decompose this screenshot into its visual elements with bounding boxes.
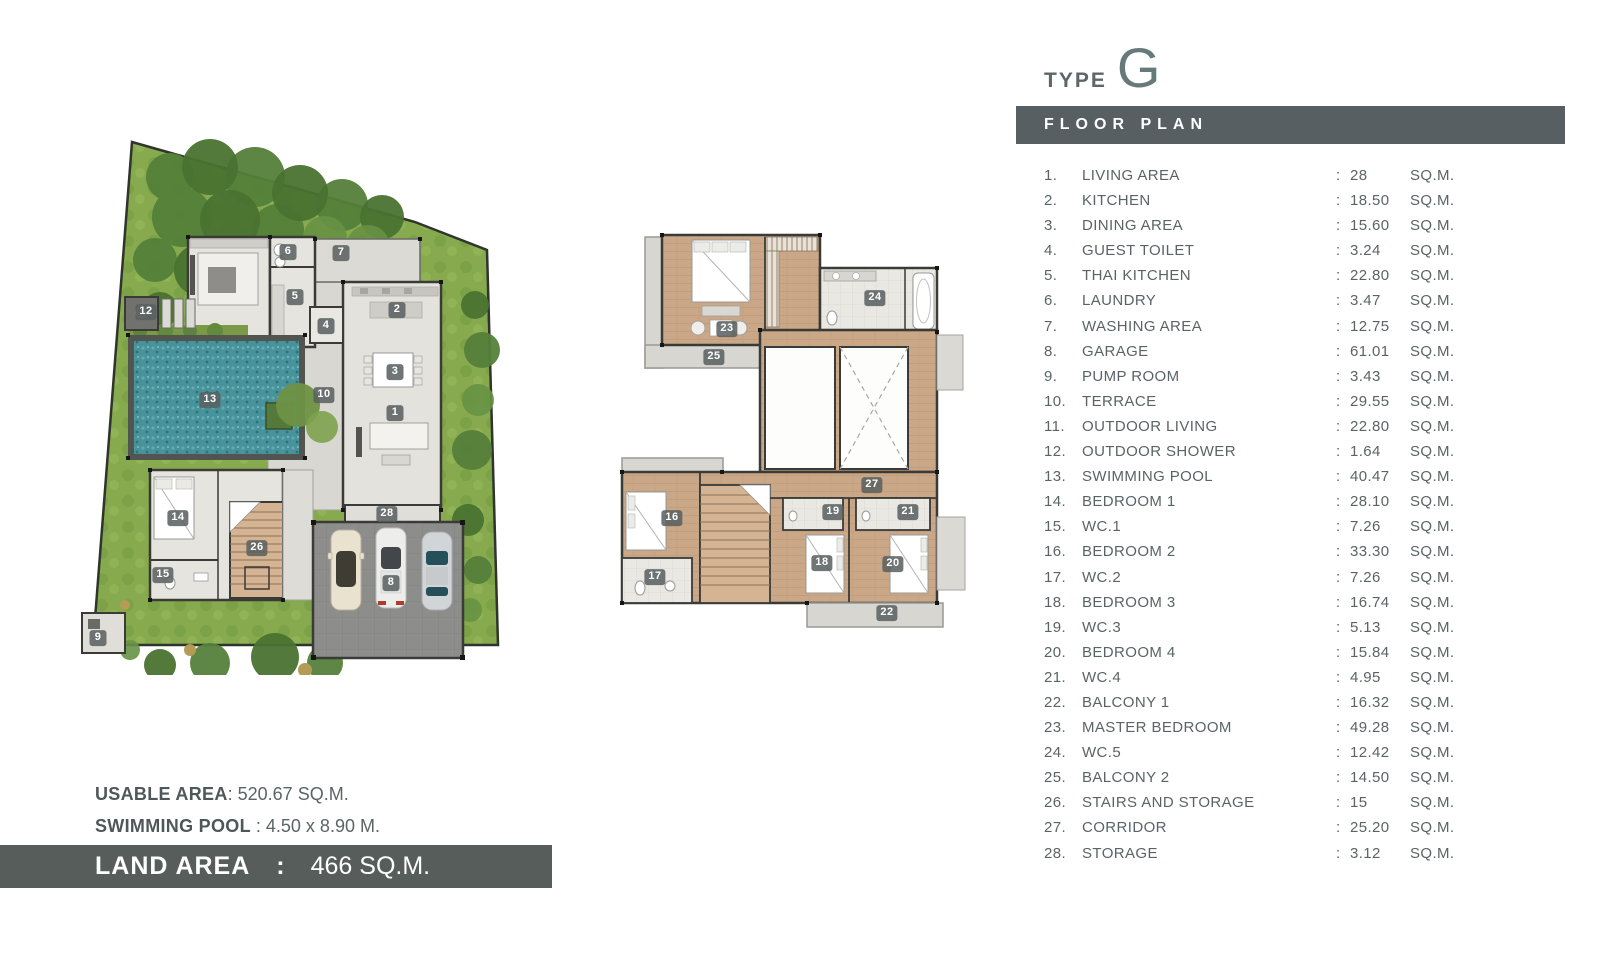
room-value: 12.75: [1350, 318, 1390, 335]
room-no: 2.: [1044, 192, 1057, 209]
room-number-badge: 14: [167, 510, 188, 526]
room-name: OUTDOOR SHOWER: [1082, 443, 1236, 460]
room-name: BEDROOM 2: [1082, 543, 1176, 560]
room-list-row: 3.DINING AREA:15.60SQ.M.: [1044, 214, 1484, 239]
room-no: 8.: [1044, 343, 1057, 360]
room-no: 25.: [1044, 769, 1066, 786]
room-value: 18.50: [1350, 192, 1390, 209]
second-floor-room-badges: 2324252716171921182022: [600, 220, 970, 640]
usable-area-line: USABLE AREA: 520.67 SQ.M.: [95, 784, 349, 805]
room-number-badge: 5: [287, 289, 304, 305]
room-value: 12.42: [1350, 744, 1390, 761]
room-list-row: 19.WC.3:5.13SQ.M.: [1044, 616, 1484, 641]
room-no: 13.: [1044, 468, 1066, 485]
room-number-badge: 10: [313, 387, 334, 403]
room-value: 4.95: [1350, 669, 1381, 686]
room-list-row: 8.GARAGE:61.01SQ.M.: [1044, 340, 1484, 365]
room-colon: :: [1336, 318, 1341, 335]
room-no: 12.: [1044, 443, 1066, 460]
room-list-row: 15.WC.1:7.26SQ.M.: [1044, 515, 1484, 540]
room-unit: SQ.M.: [1410, 845, 1455, 862]
usable-area-value: : 520.67 SQ.M.: [228, 784, 349, 804]
room-number-badge: 7: [333, 245, 350, 261]
room-no: 14.: [1044, 493, 1066, 510]
room-colon: :: [1336, 543, 1341, 560]
room-value: 5.13: [1350, 619, 1381, 636]
room-list-row: 5.THAI KITCHEN:22.80SQ.M.: [1044, 264, 1484, 289]
room-colon: :: [1336, 619, 1341, 636]
room-list-row: 6.LAUNDRY:3.47SQ.M.: [1044, 289, 1484, 314]
room-value: 28.10: [1350, 493, 1390, 510]
room-value: 22.80: [1350, 418, 1390, 435]
room-number-badge: 27: [861, 477, 882, 493]
room-list-row: 22.BALCONY 1:16.32SQ.M.: [1044, 691, 1484, 716]
floorplan-brochure-page: { "header": { "type_label": "TYPE", "typ…: [0, 0, 1600, 962]
room-list-row: 20.BEDROOM 4:15.84SQ.M.: [1044, 641, 1484, 666]
room-list-row: 1.LIVING AREA:28SQ.M.: [1044, 164, 1484, 189]
room-value: 22.80: [1350, 267, 1390, 284]
room-unit: SQ.M.: [1410, 669, 1455, 686]
room-number-badge: 4: [318, 318, 335, 334]
room-name: TERRACE: [1082, 393, 1156, 410]
room-unit: SQ.M.: [1410, 167, 1455, 184]
room-value: 15: [1350, 794, 1368, 811]
room-no: 17.: [1044, 569, 1066, 586]
room-list-row: 17.WC.2:7.26SQ.M.: [1044, 566, 1484, 591]
room-name: KITCHEN: [1082, 192, 1151, 209]
room-colon: :: [1336, 644, 1341, 661]
room-value: 28: [1350, 167, 1368, 184]
room-unit: SQ.M.: [1410, 393, 1455, 410]
room-number-badge: 25: [703, 349, 724, 365]
room-list-row: 25.BALCONY 2:14.50SQ.M.: [1044, 766, 1484, 791]
room-no: 11.: [1044, 418, 1065, 435]
room-unit: SQ.M.: [1410, 242, 1455, 259]
room-value: 25.20: [1350, 819, 1390, 836]
room-number-badge: 17: [644, 569, 665, 585]
room-name: BALCONY 1: [1082, 694, 1170, 711]
room-no: 22.: [1044, 694, 1066, 711]
room-no: 27.: [1044, 819, 1066, 836]
room-number-badge: 28: [376, 506, 397, 522]
room-list-row: 9.PUMP ROOM:3.43SQ.M.: [1044, 365, 1484, 390]
room-value: 49.28: [1350, 719, 1390, 736]
room-list-row: 14.BEDROOM 1:28.10SQ.M.: [1044, 490, 1484, 515]
room-no: 9.: [1044, 368, 1057, 385]
room-list-row: 18.BEDROOM 3:16.74SQ.M.: [1044, 591, 1484, 616]
room-unit: SQ.M.: [1410, 368, 1455, 385]
room-name: WASHING AREA: [1082, 318, 1202, 335]
room-list-row: 26.STAIRS AND STORAGE:15SQ.M.: [1044, 791, 1484, 816]
room-list-row: 2.KITCHEN:18.50SQ.M.: [1044, 189, 1484, 214]
room-list-row: 11.OUTDOOR LIVING:22.80SQ.M.: [1044, 415, 1484, 440]
room-unit: SQ.M.: [1410, 644, 1455, 661]
ground-floor-plan: 67542311213101415262889: [70, 105, 530, 675]
room-value: 33.30: [1350, 543, 1390, 560]
type-label: TYPE: [1044, 69, 1107, 93]
room-number-badge: 1: [387, 405, 404, 421]
room-name: SWIMMING POOL: [1082, 468, 1213, 485]
room-list-row: 23.MASTER BEDROOM:49.28SQ.M.: [1044, 716, 1484, 741]
room-colon: :: [1336, 694, 1341, 711]
room-value: 3.12: [1350, 845, 1381, 862]
room-no: 7.: [1044, 318, 1057, 335]
room-name: WC.5: [1082, 744, 1121, 761]
room-colon: :: [1336, 368, 1341, 385]
room-value: 15.60: [1350, 217, 1390, 234]
room-colon: :: [1336, 443, 1341, 460]
room-unit: SQ.M.: [1410, 518, 1455, 535]
room-number-badge: 19: [822, 504, 843, 520]
room-no: 1.: [1044, 167, 1057, 184]
usable-area-label: USABLE AREA: [95, 784, 228, 804]
room-name: DINING AREA: [1082, 217, 1183, 234]
room-name: LIVING AREA: [1082, 167, 1180, 184]
room-unit: SQ.M.: [1410, 292, 1455, 309]
room-no: 5.: [1044, 267, 1057, 284]
room-colon: :: [1336, 769, 1341, 786]
room-no: 19.: [1044, 619, 1066, 636]
room-colon: :: [1336, 518, 1341, 535]
room-colon: :: [1336, 669, 1341, 686]
room-name: CORRIDOR: [1082, 819, 1167, 836]
room-unit: SQ.M.: [1410, 769, 1455, 786]
room-number-badge: 3: [387, 364, 404, 380]
room-name: WC.4: [1082, 669, 1121, 686]
room-number-badge: 20: [882, 556, 903, 572]
room-name: STORAGE: [1082, 845, 1158, 862]
room-value: 16.32: [1350, 694, 1390, 711]
room-colon: :: [1336, 594, 1341, 611]
room-unit: SQ.M.: [1410, 192, 1455, 209]
room-list-row: 10.TERRACE:29.55SQ.M.: [1044, 390, 1484, 415]
room-list-row: 7.WASHING AREA:12.75SQ.M.: [1044, 315, 1484, 340]
room-unit: SQ.M.: [1410, 217, 1455, 234]
land-area-value: 466 SQ.M.: [311, 852, 431, 880]
room-number-badge: 26: [246, 540, 267, 556]
room-colon: :: [1336, 493, 1341, 510]
room-colon: :: [1336, 719, 1341, 736]
room-value: 14.50: [1350, 769, 1390, 786]
room-number-badge: 12: [135, 304, 156, 320]
room-list-row: 16.BEDROOM 2:33.30SQ.M.: [1044, 540, 1484, 565]
room-list-row: 21.WC.4:4.95SQ.M.: [1044, 666, 1484, 691]
room-unit: SQ.M.: [1410, 594, 1455, 611]
land-area-label: LAND AREA: [95, 852, 250, 880]
room-no: 6.: [1044, 292, 1057, 309]
room-colon: :: [1336, 242, 1341, 259]
room-value: 3.43: [1350, 368, 1381, 385]
room-value: 16.74: [1350, 594, 1390, 611]
room-list-row: 27.CORRIDOR:25.20SQ.M.: [1044, 816, 1484, 841]
room-unit: SQ.M.: [1410, 267, 1455, 284]
room-list-row: 4.GUEST TOILET:3.24SQ.M.: [1044, 239, 1484, 264]
room-list-row: 28.STORAGE:3.12SQ.M.: [1044, 842, 1484, 867]
land-area-bar: LAND AREA:466 SQ.M.: [0, 845, 552, 888]
room-name: BEDROOM 1: [1082, 493, 1176, 510]
room-unit: SQ.M.: [1410, 343, 1455, 360]
room-value: 1.64: [1350, 443, 1381, 460]
second-floor-plan: 2324252716171921182022: [600, 220, 970, 640]
room-no: 21.: [1044, 669, 1066, 686]
room-colon: :: [1336, 267, 1341, 284]
room-name: PUMP ROOM: [1082, 368, 1180, 385]
room-colon: :: [1336, 744, 1341, 761]
room-number-badge: 8: [383, 575, 400, 591]
room-list-row: 24.WC.5:12.42SQ.M.: [1044, 741, 1484, 766]
room-name: WC.1: [1082, 518, 1121, 535]
room-colon: :: [1336, 468, 1341, 485]
room-name: GARAGE: [1082, 343, 1149, 360]
room-colon: :: [1336, 393, 1341, 410]
room-name: BEDROOM 4: [1082, 644, 1176, 661]
swimming-pool-label: SWIMMING POOL: [95, 816, 251, 836]
room-value: 15.84: [1350, 644, 1390, 661]
type-value: G: [1117, 40, 1161, 96]
room-number-badge: 13: [199, 392, 220, 408]
room-no: 18.: [1044, 594, 1066, 611]
room-name: BEDROOM 3: [1082, 594, 1176, 611]
room-value: 40.47: [1350, 468, 1390, 485]
floor-plan-title-bar: FLOOR PLAN: [1016, 106, 1565, 144]
room-value: 7.26: [1350, 518, 1381, 535]
room-number-badge: 2: [389, 302, 406, 318]
room-name: OUTDOOR LIVING: [1082, 418, 1218, 435]
room-value: 29.55: [1350, 393, 1390, 410]
land-area-colon: :: [276, 852, 284, 880]
room-colon: :: [1336, 794, 1341, 811]
floor-plan-title: FLOOR PLAN: [1016, 106, 1565, 144]
room-value: 7.26: [1350, 569, 1381, 586]
room-unit: SQ.M.: [1410, 719, 1455, 736]
room-unit: SQ.M.: [1410, 468, 1455, 485]
room-number-badge: 23: [716, 321, 737, 337]
room-no: 3.: [1044, 217, 1057, 234]
room-name: THAI KITCHEN: [1082, 267, 1191, 284]
room-no: 10.: [1044, 393, 1066, 410]
room-number-badge: 21: [897, 504, 918, 520]
room-name: BALCONY 2: [1082, 769, 1170, 786]
room-colon: :: [1336, 819, 1341, 836]
room-area-list: 1.LIVING AREA:28SQ.M.2.KITCHEN:18.50SQ.M…: [1044, 164, 1484, 867]
room-unit: SQ.M.: [1410, 418, 1455, 435]
room-name: MASTER BEDROOM: [1082, 719, 1232, 736]
room-number-badge: 18: [811, 555, 832, 571]
room-value: 3.24: [1350, 242, 1381, 259]
room-no: 24.: [1044, 744, 1066, 761]
room-number-badge: 24: [864, 290, 885, 306]
room-unit: SQ.M.: [1410, 819, 1455, 836]
room-unit: SQ.M.: [1410, 744, 1455, 761]
room-no: 26.: [1044, 794, 1066, 811]
swimming-pool-value: : 4.50 x 8.90 M.: [251, 816, 380, 836]
room-unit: SQ.M.: [1410, 694, 1455, 711]
room-unit: SQ.M.: [1410, 543, 1455, 560]
room-colon: :: [1336, 845, 1341, 862]
room-number-badge: 9: [90, 630, 107, 646]
room-unit: SQ.M.: [1410, 794, 1455, 811]
room-no: 28.: [1044, 845, 1066, 862]
room-unit: SQ.M.: [1410, 318, 1455, 335]
room-colon: :: [1336, 569, 1341, 586]
room-colon: :: [1336, 418, 1341, 435]
room-number-badge: 15: [152, 567, 173, 583]
room-value: 3.47: [1350, 292, 1381, 309]
room-unit: SQ.M.: [1410, 493, 1455, 510]
room-colon: :: [1336, 343, 1341, 360]
room-list-row: 13.SWIMMING POOL:40.47SQ.M.: [1044, 465, 1484, 490]
room-colon: :: [1336, 167, 1341, 184]
room-number-badge: 22: [876, 605, 897, 621]
room-no: 15.: [1044, 518, 1066, 535]
ground-floor-room-badges: 67542311213101415262889: [70, 105, 530, 675]
room-no: 20.: [1044, 644, 1066, 661]
room-name: WC.2: [1082, 569, 1121, 586]
room-value: 61.01: [1350, 343, 1390, 360]
room-number-badge: 16: [661, 510, 682, 526]
type-heading: TYPE G: [1044, 40, 1160, 96]
room-unit: SQ.M.: [1410, 443, 1455, 460]
room-name: GUEST TOILET: [1082, 242, 1194, 259]
room-number-badge: 6: [280, 244, 297, 260]
room-colon: :: [1336, 217, 1341, 234]
room-list-row: 12.OUTDOOR SHOWER:1.64SQ.M.: [1044, 440, 1484, 465]
room-no: 4.: [1044, 242, 1057, 259]
room-unit: SQ.M.: [1410, 569, 1455, 586]
room-no: 23.: [1044, 719, 1066, 736]
room-colon: :: [1336, 192, 1341, 209]
room-unit: SQ.M.: [1410, 619, 1455, 636]
swimming-pool-line: SWIMMING POOL : 4.50 x 8.90 M.: [95, 816, 380, 837]
room-no: 16.: [1044, 543, 1066, 560]
room-name: WC.3: [1082, 619, 1121, 636]
room-name: STAIRS AND STORAGE: [1082, 794, 1255, 811]
room-colon: :: [1336, 292, 1341, 309]
room-name: LAUNDRY: [1082, 292, 1156, 309]
